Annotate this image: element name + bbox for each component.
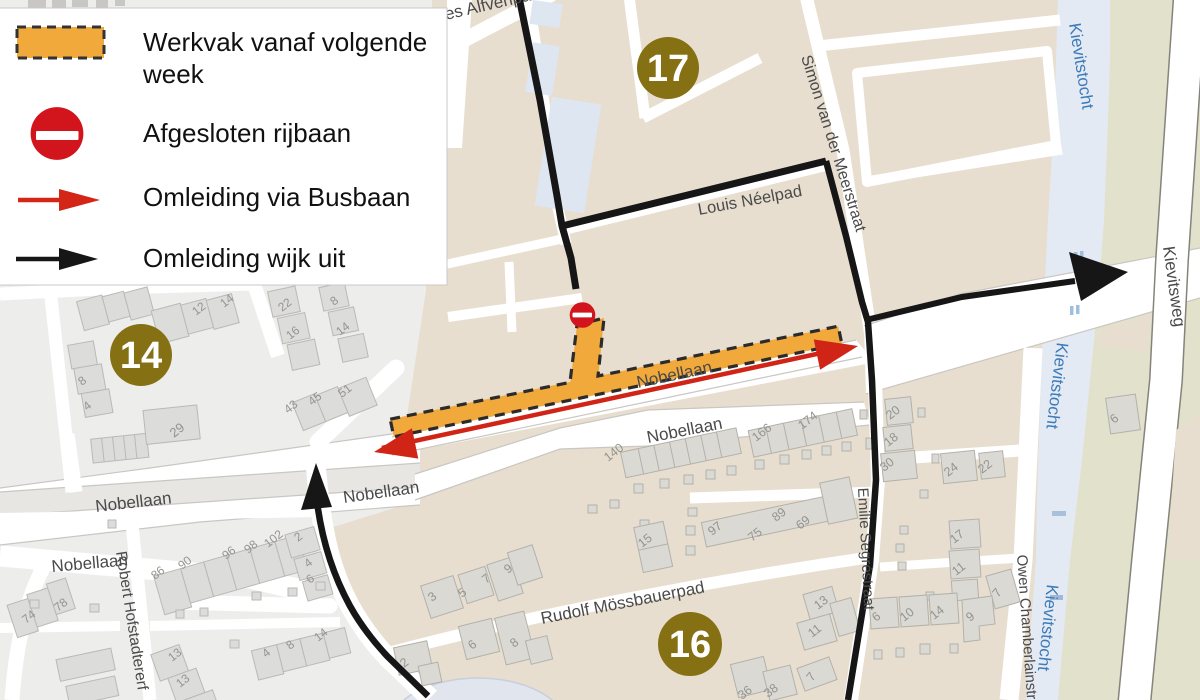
svg-text:week: week — [142, 59, 205, 89]
svg-text:17: 17 — [647, 48, 689, 90]
svg-text:16: 16 — [669, 624, 711, 666]
svg-text:Werkvak vanaf volgende: Werkvak vanaf volgende — [143, 27, 427, 57]
svg-text:14: 14 — [120, 335, 162, 377]
svg-text:Afgesloten rijbaan: Afgesloten rijbaan — [143, 118, 351, 148]
svg-text:Omleiding via Busbaan: Omleiding via Busbaan — [143, 182, 410, 212]
svg-text:Omleiding wijk uit: Omleiding wijk uit — [143, 243, 346, 273]
